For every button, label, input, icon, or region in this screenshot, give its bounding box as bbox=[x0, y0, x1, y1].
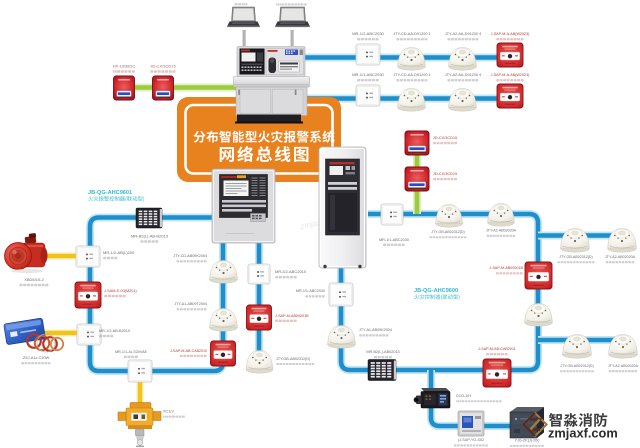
svg-text:JTY-CD-AA-D91200 1: JTY-CD-AA-D91200 1 bbox=[393, 73, 430, 77]
svg-text:J-SAM-E-03(M201): J-SAM-E-03(M201) bbox=[104, 289, 137, 293]
svg-text:zmjaxf.com: zmjaxf.com bbox=[548, 426, 618, 441]
svg-text:HX-100B/2C: HX-100B/2C bbox=[113, 64, 136, 69]
svg-text:XBD5/10-2: XBD5/10-2 bbox=[24, 277, 44, 282]
svg-text:MR-1/1-Ju-S20VAE: MR-1/1-Ju-S20VAE bbox=[115, 350, 148, 354]
svg-text:JTY-A2-AB02020A: JTY-A2-AB02020A bbox=[486, 229, 517, 233]
svg-text:J-SAP-M-AB-CAB2011: J-SAP-M-AB-CAB2011 bbox=[478, 347, 516, 351]
svg-text:JD-CX/3CD15: JD-CX/3CD15 bbox=[433, 172, 457, 176]
svg-text:J-SAP-M-AB-CAB2010: J-SAP-M-AB-CAB2010 bbox=[170, 349, 207, 353]
svg-text:JTY-GB-AB02312(D): JTY-GB-AB02312(D) bbox=[431, 230, 464, 234]
svg-text:MR-D2-ABC2010: MR-D2-ABC2010 bbox=[275, 269, 307, 274]
svg-text:MR-1/2-AB(L)200: MR-1/2-AB(L)200 bbox=[103, 250, 135, 255]
svg-text:CCD-1/H: CCD-1/H bbox=[456, 394, 471, 398]
svg-text:JTY-A2-AA-D91200 4: JTY-A2-AA-D91200 4 bbox=[445, 73, 481, 77]
svg-text:ZSJ-A1x-C20W: ZSJ-A1x-C20W bbox=[23, 356, 50, 360]
svg-text:MR-1/1-ABC2030: MR-1/1-ABC2030 bbox=[296, 289, 325, 293]
svg-text:MR-1/1-ABC2030: MR-1/1-ABC2030 bbox=[352, 72, 384, 77]
svg-text:MR-1/2-ABC2030: MR-1/2-ABC2030 bbox=[352, 31, 384, 36]
svg-text:MR-1/2-AB-B2010: MR-1/2-AB-B2010 bbox=[99, 329, 130, 333]
svg-text:JB-QG-AHC9600: JB-QG-AHC9600 bbox=[414, 288, 458, 294]
svg-text:XC1/3: XC1/3 bbox=[163, 410, 174, 414]
svg-text:MR-B2(L)-AB-B2013: MR-B2(L)-AB-B2013 bbox=[131, 234, 169, 239]
svg-text:JD-CX/3CD15: JD-CX/3CD15 bbox=[433, 136, 457, 140]
svg-text:JTY-GB-AB02312(D): JTY-GB-AB02312(D) bbox=[559, 255, 592, 259]
svg-text:JTY-GB-AB02312(D): JTY-GB-AB02312(D) bbox=[276, 357, 310, 361]
svg-text:(J-SAP-YG-S02: (J-SAP-YG-S02 bbox=[458, 438, 484, 442]
svg-text:JD-CX/3CD15: JD-CX/3CD15 bbox=[150, 64, 176, 69]
svg-text:J-SAP-M-A-AB(W2023): J-SAP-M-A-AB(W2023) bbox=[491, 32, 530, 36]
svg-text:YJG-ZK(J)-200: YJG-ZK(J)-200 bbox=[515, 439, 540, 443]
svg-text:J-SAP-M-AB09201B: J-SAP-M-AB09201B bbox=[275, 314, 309, 318]
svg-text:JTY-A2-AB02020A: JTY-A2-AB02020A bbox=[608, 364, 639, 368]
svg-text:JB-QG-AHC9601: JB-QG-AHC9601 bbox=[88, 190, 132, 196]
svg-text:JTY-A2-AB02020A: JTY-A2-AB02020A bbox=[605, 255, 636, 259]
svg-text:JTY-GB-AB02312(D): JTY-GB-AB02312(D) bbox=[560, 364, 593, 368]
svg-text:JTY-A1-AB09K2004: JTY-A1-AB09K2004 bbox=[359, 328, 392, 332]
svg-text:JTY-CD-AA-D91200 1: JTY-CD-AA-D91200 1 bbox=[393, 32, 430, 36]
svg-text:MR-B2(L)-AB02013: MR-B2(L)-AB02013 bbox=[366, 350, 399, 354]
svg-text:JTY-CD-AB09K2004: JTY-CD-AB09K2004 bbox=[173, 254, 207, 258]
svg-text:JTY-A2-AA-D91200 4: JTY-A2-AA-D91200 4 bbox=[445, 32, 481, 36]
svg-text:JTY-A1-AB09T2004: JTY-A1-AB09T2004 bbox=[174, 302, 207, 306]
svg-text:MR-1/1-ABC2030: MR-1/1-ABC2030 bbox=[379, 238, 409, 242]
svg-text:J-SAP-M-AB09201B: J-SAP-M-AB09201B bbox=[489, 266, 523, 270]
svg-text:J-SAP-M-A-AB(W2023): J-SAP-M-A-AB(W2023) bbox=[491, 73, 530, 77]
